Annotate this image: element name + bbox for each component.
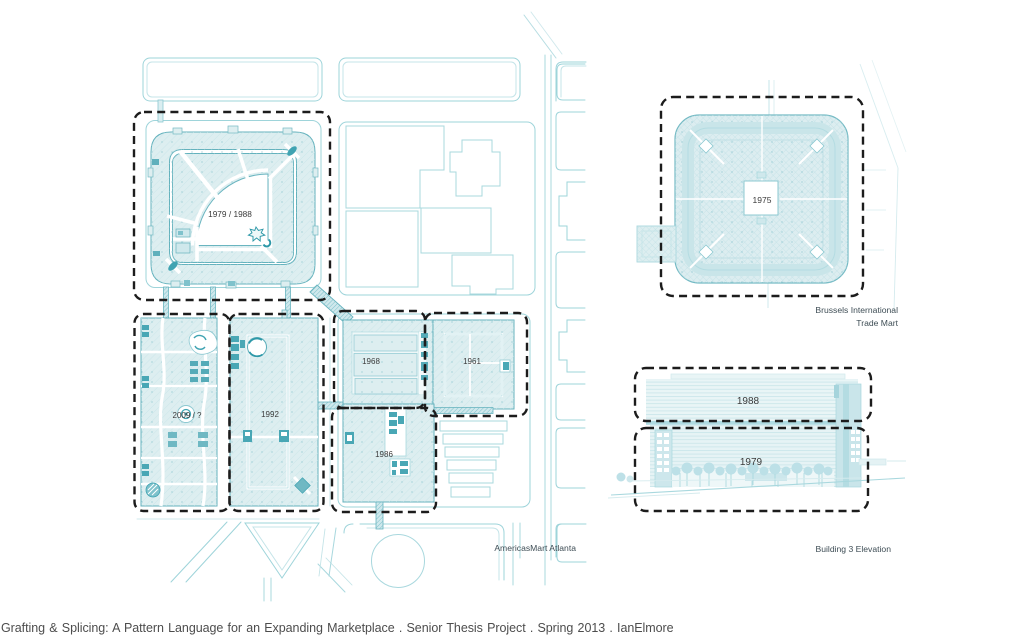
svg-text:Building 3 Elevation: Building 3 Elevation xyxy=(816,544,892,554)
svg-text:2009 / ?: 2009 / ? xyxy=(173,411,202,420)
svg-text:1986: 1986 xyxy=(375,450,393,459)
svg-text:Brussels International: Brussels International xyxy=(815,305,898,315)
svg-text:1988: 1988 xyxy=(737,396,760,407)
svg-text:AmericasMart Atlanta: AmericasMart Atlanta xyxy=(494,543,576,553)
svg-text:1979: 1979 xyxy=(740,457,763,468)
svg-text:Trade Mart: Trade Mart xyxy=(856,318,898,328)
svg-text:Grafting & Splicing: A Pattern: Grafting & Splicing: A Pattern Language … xyxy=(1,621,674,635)
svg-text:1961: 1961 xyxy=(463,357,481,366)
svg-text:1968: 1968 xyxy=(362,357,380,366)
svg-text:1975: 1975 xyxy=(753,195,772,205)
svg-text:1979 / 1988: 1979 / 1988 xyxy=(208,209,252,219)
svg-text:1992: 1992 xyxy=(261,410,279,419)
